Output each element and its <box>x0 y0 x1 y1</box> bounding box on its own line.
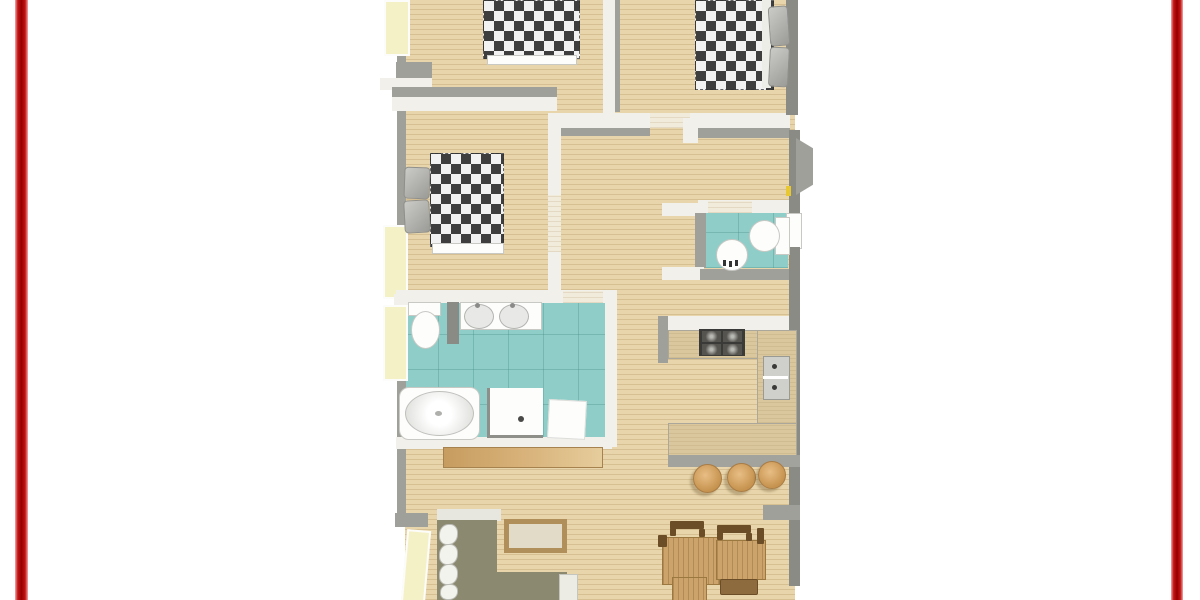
bed-top-left-sheet <box>487 55 577 65</box>
hall-north-wall-shadow-right <box>690 128 790 138</box>
floor-plan <box>0 0 1200 600</box>
midbedroom-east-wall-upper <box>548 125 561 195</box>
kitchen-sink-drain-2 <box>772 385 777 390</box>
faucet-1 <box>475 303 480 308</box>
dining-chair-1-post-r <box>699 529 705 537</box>
powder-sink-tap-1 <box>723 260 726 266</box>
right-exterior-wall-lower <box>789 520 800 586</box>
coffee-table <box>504 519 567 553</box>
dining-chair-2-post-r <box>746 533 752 541</box>
right-wall-stub <box>763 505 800 520</box>
kitchen-north-wall <box>662 316 795 330</box>
bed-middle-pillow-1 <box>403 167 430 200</box>
bathtub-drain <box>435 411 442 416</box>
bar-stool-1 <box>693 464 722 493</box>
vanity-sink-2 <box>499 304 529 329</box>
floor-plan-image <box>0 0 1200 600</box>
bar-stool-3 <box>758 461 786 489</box>
faucet-2 <box>510 303 515 308</box>
sofa-horizontal-section <box>495 572 567 600</box>
vestibule-wall-stub <box>683 118 698 143</box>
entry-door-handle <box>786 186 791 196</box>
sofa-pillow-1 <box>439 524 458 545</box>
window-left-bathroom <box>383 305 408 381</box>
corner-wall-sw <box>395 513 428 527</box>
toilet-privacy-wall <box>447 302 459 344</box>
dining-chair-2-post-l <box>717 532 723 540</box>
midbedroom-door-threshold <box>548 195 561 252</box>
window-left-top <box>384 0 410 56</box>
burner-4 <box>723 344 742 355</box>
bath-mat <box>547 399 587 440</box>
powder-room-door-threshold <box>708 201 752 213</box>
bed-top-left-checkered-blanket <box>483 0 580 59</box>
bedrooms-divider-shadow <box>615 0 620 112</box>
bed-top-right-pillow-2 <box>768 47 790 88</box>
powder-room-west-wall <box>695 213 706 268</box>
dining-chair-4-back <box>658 535 667 547</box>
kitchen-sink-divider <box>763 376 788 379</box>
powder-room-south-wall-white <box>662 267 704 280</box>
shower-drain <box>518 416 524 422</box>
corner-wall-nw-shadow <box>396 62 432 78</box>
powder-sink-tap-2 <box>729 261 732 267</box>
powder-round-sink <box>716 239 748 271</box>
dining-chair-3-back <box>757 528 764 544</box>
vanity-sink-1 <box>464 304 494 329</box>
bed-middle-sheet <box>432 243 504 254</box>
hall-north-wall-shadow-left <box>557 128 650 136</box>
bed-middle-checkered-blanket <box>430 153 504 247</box>
powder-sink-tap-3 <box>735 260 738 266</box>
sofa-pillow-3 <box>439 564 458 585</box>
bedrooms-divider-wall <box>603 0 615 115</box>
burner-3 <box>702 344 721 355</box>
sideboard <box>443 447 603 468</box>
bed-middle-pillow-2 <box>403 199 431 233</box>
sofa-pillow-4 <box>440 584 458 600</box>
entry-door-porch <box>796 138 813 195</box>
sofa-pillow-2 <box>439 544 458 565</box>
bedroom1-south-wall-shadow <box>392 87 557 97</box>
shower-stall <box>487 388 543 438</box>
dining-chair-bottom-seat <box>720 579 758 595</box>
kitchen-west-wall-stub <box>658 316 668 363</box>
powder-room-south-wall-shadow <box>700 269 790 280</box>
bedroom1-south-wall <box>392 97 557 111</box>
burner-1 <box>702 331 721 342</box>
bathroom-east-wall <box>605 290 617 447</box>
hall-north-wall-left <box>548 113 650 128</box>
hall-north-wall-right <box>690 113 790 128</box>
sofa-armrest <box>559 574 578 600</box>
bed-top-right-pillow-1 <box>768 5 791 46</box>
kitchen-island <box>668 423 797 459</box>
toilet-bowl <box>411 311 440 349</box>
window-left-bedroom <box>383 225 408 299</box>
dining-chair-1-post-l <box>670 528 676 536</box>
powder-toilet-bowl <box>749 220 780 252</box>
burner-2 <box>723 331 742 342</box>
bathroom-door-threshold <box>563 291 603 303</box>
dining-table-right <box>716 540 766 580</box>
kitchen-sink-drain-1 <box>772 364 777 369</box>
bar-stool-2 <box>727 463 756 492</box>
dining-table-extension <box>672 577 707 600</box>
